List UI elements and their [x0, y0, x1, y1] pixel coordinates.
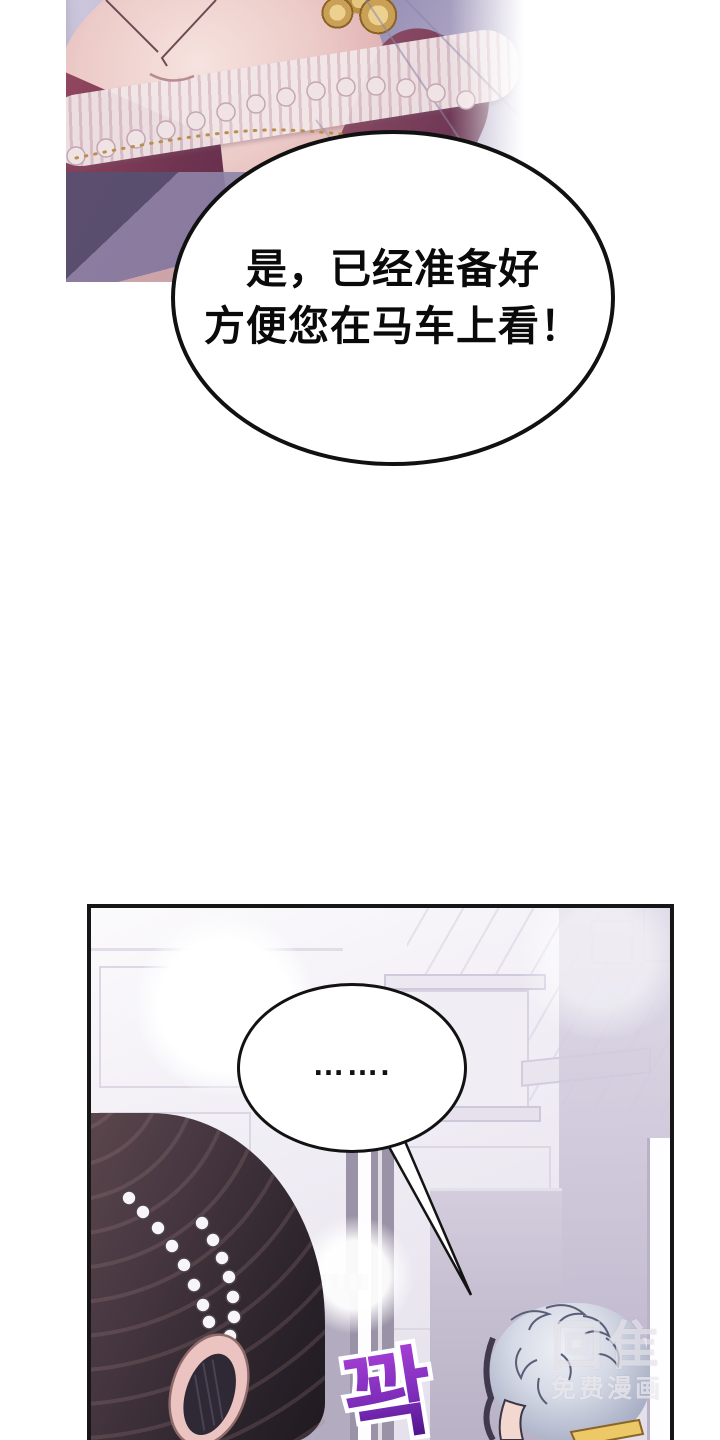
speech-text-line-2: 方便您在马车上看！: [204, 298, 582, 355]
sfx-fill: 꽉: [337, 1341, 441, 1440]
comic-page: 是，已经准备好 方便您在马车上看！: [0, 0, 720, 1440]
speech-text-line-1: 是，已经准备好: [246, 241, 540, 298]
watermark-logo: 回隹: [537, 1320, 674, 1374]
site-watermark: 回隹 免费漫画: [537, 1320, 674, 1404]
watermark-caption: 免费漫画: [537, 1374, 674, 1404]
speech-bubble-top: 是，已经准备好 方便您在马车上看！: [171, 130, 615, 466]
sfx-text: 꽉 꽉: [337, 1335, 486, 1440]
bottom-panel: …….: [87, 904, 674, 1440]
speech-text-dots: …….: [313, 1046, 392, 1083]
speech-bubble-bottom: …….: [237, 983, 467, 1153]
